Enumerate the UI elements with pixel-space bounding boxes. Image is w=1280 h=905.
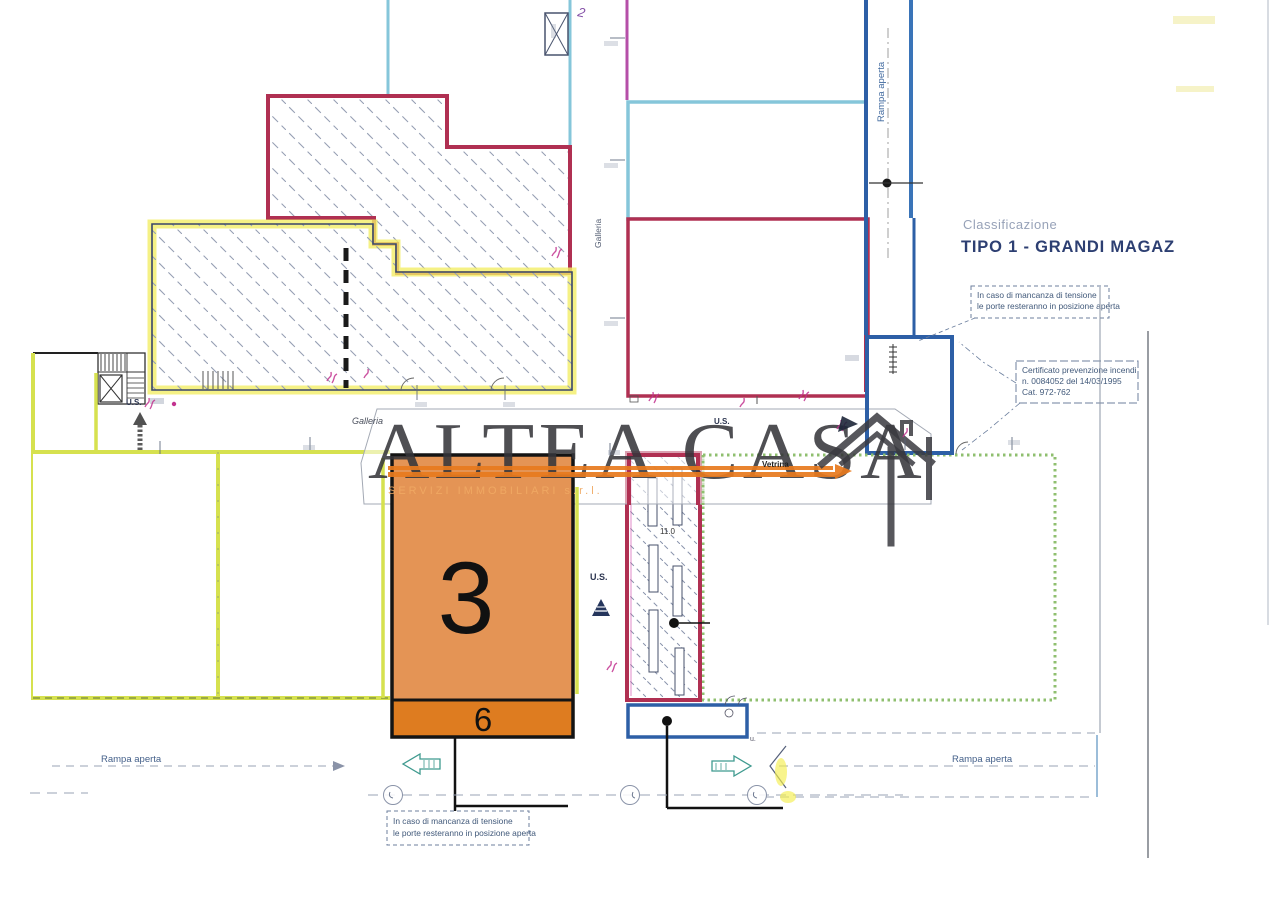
unit-crimson (628, 219, 868, 396)
ramp-label-top: Rampa aperta (876, 61, 887, 122)
lower-left-rooms (33, 452, 390, 698)
note-line: Certificato prevenzione incendi (1022, 365, 1137, 375)
note-power-top: In caso di mancanza di tensione le porte… (918, 286, 1120, 341)
gallery-label-vertical: Galleria (593, 218, 603, 248)
floorplan-canvas: 3 6 ALTEA CASA SERVIZI IMMOBILIARI s.r.l… (0, 0, 1280, 905)
vetrina-label: Vetrina (762, 460, 789, 469)
note-certificate: Certificato prevenzione incendi n. 00840… (959, 342, 1138, 450)
ramp-label-bottom-right: Rampa aperta (952, 754, 1013, 765)
highlighter-smear (780, 791, 796, 803)
dim-smudge (845, 355, 859, 361)
column-dot (662, 716, 672, 726)
flow-arrow-right-hatch (716, 763, 726, 770)
entry-arrow-up (133, 412, 147, 452)
highlighted-unit-3: 3 6 (383, 455, 577, 738)
note-line: le porte resteranno in posizione aperta (977, 301, 1120, 311)
yellow-smudges (1173, 16, 1215, 92)
note-line: In caso di mancanza di tensione (977, 290, 1097, 300)
top-middle-units (628, 102, 868, 404)
us-label-stairs: U.S. (126, 398, 142, 407)
ramp-label-bottom-left: Rampa aperta (101, 754, 162, 765)
note-power-bottom: In caso di mancanza di tensione le porte… (387, 811, 536, 845)
stairs-block (33, 353, 164, 404)
flow-arrow-right (712, 756, 751, 776)
note-line: Cat. 972-762 (1022, 387, 1071, 397)
us-label-right: U.S. (714, 417, 730, 426)
note-line: le porte resteranno in posizione aperta (393, 828, 536, 838)
elevator-symbol (545, 13, 568, 55)
warning-triangle (592, 599, 610, 616)
unit-cyan (628, 102, 866, 219)
us-label-center: U.S. (590, 572, 608, 582)
flow-arrow-left (403, 754, 440, 774)
note-line: n. 0084052 del 14/03/1995 (1022, 376, 1122, 386)
escalator-dim-label: 11.0 (660, 527, 676, 536)
classification-value: TIPO 1 - GRANDI MAGAZ (961, 238, 1175, 256)
door-symbol (203, 371, 233, 389)
floorplan-page: 3 6 ALTEA CASA SERVIZI IMMOBILIARI s.r.l… (0, 0, 1280, 905)
column-dot (669, 618, 679, 628)
unit-number: 3 (438, 541, 495, 655)
unit-sub-number: 6 (474, 701, 492, 738)
boundary-lines (1100, 0, 1268, 858)
handwritten-2: 2 (575, 4, 587, 21)
note-line: In caso di mancanza di tensione (393, 816, 513, 826)
highlighter-smear (775, 758, 787, 786)
gallery-label-horizontal: Galleria (352, 416, 383, 426)
u-mark: u. (750, 736, 756, 743)
classification-label: Classificazione (963, 217, 1057, 232)
ramp-right (866, 0, 923, 392)
leader-lines (455, 738, 568, 812)
watermark-tagline: SERVIZI IMMOBILIARI s.r.l. (388, 485, 603, 497)
ramp-arrow-right (333, 761, 345, 771)
door-arc (956, 442, 968, 454)
flow-arrow-left-hatch (424, 760, 434, 768)
pink-dot (172, 402, 176, 406)
bottom-guides (30, 733, 1095, 797)
